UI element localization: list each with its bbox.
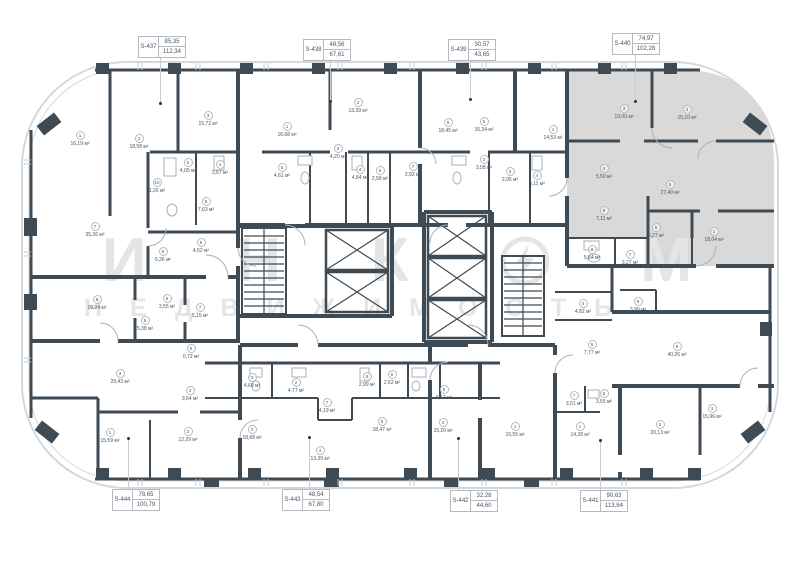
room-number: 2 xyxy=(439,418,448,427)
room-number: 3 xyxy=(248,425,257,434)
room-label: 313,00 м² xyxy=(604,104,644,120)
room-label: 45,11 м² xyxy=(517,171,557,187)
unit-label-S-444[interactable]: S-44478,65100,79 xyxy=(112,489,160,511)
unit-leader-line xyxy=(160,58,161,103)
unit-leader-dot xyxy=(634,100,637,103)
room-label: 14,60 м² xyxy=(232,373,272,389)
room-number: 8 xyxy=(588,245,597,254)
room-number: 1 xyxy=(283,122,292,131)
room-label: 75,15 м² xyxy=(180,303,220,319)
room-label: 65,36 м² xyxy=(143,247,183,263)
room-area: 13,39 м² xyxy=(338,108,378,114)
room-area: 13,39 м² xyxy=(300,456,340,462)
unit-leader-dot xyxy=(159,102,162,105)
room-label: 72,92 м² xyxy=(393,162,433,178)
room-number: 8 xyxy=(444,118,453,127)
room-label: 819,24 м² xyxy=(77,295,117,311)
room-number: 4 xyxy=(316,446,325,455)
room-label: 735,26 м² xyxy=(75,222,115,238)
room-number: 8 xyxy=(93,295,102,304)
room-area: 4,19 м² xyxy=(307,408,347,414)
unit-id: S-437 xyxy=(139,37,159,57)
room-label: 215,20 м² xyxy=(423,418,463,434)
unit-id: S-443 xyxy=(283,490,303,510)
room-number: 6 xyxy=(652,223,661,232)
room-area: 18,04 м² xyxy=(694,237,734,243)
room-number: 4 xyxy=(186,386,195,395)
room-area: 7,11 м² xyxy=(584,216,624,222)
room-label: 65,27 м² xyxy=(636,223,676,239)
room-number: 6 xyxy=(600,389,609,398)
room-label: 34,20 м² xyxy=(318,144,358,160)
unit-area-upper: 30,57 xyxy=(469,40,495,50)
room-number: 4 xyxy=(533,171,542,180)
room-number: 7 xyxy=(570,391,579,400)
room-area: 40,26 м² xyxy=(657,352,697,358)
room-area: 18,58 м² xyxy=(119,144,159,150)
room-label: 101,26 м² xyxy=(137,178,177,194)
unit-areas: 32,2844,60 xyxy=(471,491,497,511)
room-number: 9 xyxy=(600,206,609,215)
room-number: 10 xyxy=(153,178,162,187)
room-number: 1 xyxy=(576,422,585,431)
room-number: 1 xyxy=(710,227,719,236)
room-area: 4,52 м² xyxy=(181,248,221,254)
unit-area-upper: 74,97 xyxy=(633,34,659,44)
room-number: 9 xyxy=(634,297,643,306)
unit-area-lower: 113,84 xyxy=(601,501,627,511)
room-number: 3 xyxy=(620,104,629,113)
room-label: 73,27 м² xyxy=(610,250,650,266)
room-number: 1 xyxy=(549,125,558,134)
room-label: 116,55 м² xyxy=(495,422,535,438)
unit-areas: 30,5743,65 xyxy=(469,40,495,60)
room-number: 6 xyxy=(159,247,168,256)
room-label: 116,68 м² xyxy=(267,122,307,138)
room-area: 18,47 м² xyxy=(362,427,402,433)
room-number: 8 xyxy=(673,342,682,351)
room-label: 516,34 м² xyxy=(464,117,504,133)
unit-label-S-442[interactable]: S-44232,2844,60 xyxy=(450,490,498,512)
unit-leader-dot xyxy=(599,439,602,442)
room-number: 9 xyxy=(187,344,196,353)
room-area: 6,17 м² xyxy=(424,395,464,401)
room-area: 27,40 м² xyxy=(650,190,690,196)
room-area: 12,29 м² xyxy=(168,437,208,443)
room-label: 115,59 м² xyxy=(90,428,130,444)
unit-leader-line xyxy=(128,438,129,489)
room-number: 6 xyxy=(388,370,397,379)
unit-leader-line xyxy=(458,438,459,490)
unit-id: S-439 xyxy=(449,40,469,60)
room-label: 93,99 м² xyxy=(618,297,658,313)
unit-id: S-444 xyxy=(113,490,133,510)
room-area: 3,64 м² xyxy=(170,396,210,402)
room-label: 44,82 м² xyxy=(563,299,603,315)
room-number: 5 xyxy=(588,340,597,349)
floor-plan-page: И Н К М НЕДВИЖИМОСТЬ xyxy=(0,0,800,566)
room-number: 3 xyxy=(506,167,515,176)
room-area: 15,20 м² xyxy=(423,428,463,434)
room-label: 318,68 м² xyxy=(232,425,272,441)
room-label: 213,39 м² xyxy=(338,98,378,114)
room-number: 5 xyxy=(184,158,193,167)
room-number: 2 xyxy=(135,134,144,143)
room-area: 5,38 м² xyxy=(125,326,165,332)
room-number: 5 xyxy=(141,316,150,325)
room-area: 2,62 м² xyxy=(372,380,412,386)
room-number: 8 xyxy=(202,197,211,206)
room-number: 2 xyxy=(656,420,665,429)
unit-label-S-437[interactable]: S-43785,35112,34 xyxy=(138,36,186,58)
room-label: 114,28 м² xyxy=(560,422,600,438)
room-label: 315,72 м² xyxy=(188,111,228,127)
unit-area-lower: 112,34 xyxy=(159,47,185,57)
unit-area-lower: 67,80 xyxy=(303,500,329,510)
room-area: 18,45 м² xyxy=(428,128,468,134)
room-label: 116,19 м² xyxy=(60,131,100,147)
unit-leader-dot xyxy=(469,98,472,101)
room-label: 85,64 м² xyxy=(572,245,612,261)
room-area: 14,28 м² xyxy=(560,432,600,438)
room-number: 6 xyxy=(163,294,172,303)
room-number: 6 xyxy=(376,166,385,175)
room-number: 5 xyxy=(363,372,372,381)
room-area: 19,24 м² xyxy=(77,305,117,311)
room-area: 5,50 м² xyxy=(584,174,624,180)
unit-leader-dot xyxy=(457,437,460,440)
room-area: 2,92 м² xyxy=(393,172,433,178)
room-label: 218,58 м² xyxy=(119,134,159,150)
room-area: 5,64 м² xyxy=(572,255,612,261)
unit-leader-line xyxy=(635,55,636,101)
unit-leader-dot xyxy=(329,100,332,103)
room-label: 329,43 м² xyxy=(100,369,140,385)
room-area: 4,61 м² xyxy=(262,173,302,179)
room-area: 1,26 м² xyxy=(137,188,177,194)
room-label: 114,53 м² xyxy=(533,125,573,141)
room-area: 3,67 м² xyxy=(200,170,240,176)
unit-areas: 48,5467,80 xyxy=(303,490,329,510)
room-label: 45,50 м² xyxy=(584,164,624,180)
room-label: 43,64 м² xyxy=(170,386,210,402)
unit-leader-dot xyxy=(308,436,311,439)
room-number: 3 xyxy=(116,369,125,378)
room-area: 18,68 м² xyxy=(232,435,272,441)
unit-area-lower: 100,79 xyxy=(133,500,159,510)
room-number: 2 xyxy=(480,155,489,164)
room-label: 818,47 м² xyxy=(362,417,402,433)
room-label: 413,39 м² xyxy=(300,446,340,462)
room-number: 5 xyxy=(278,163,287,172)
unit-area-upper: 32,28 xyxy=(471,491,497,501)
room-number: 3 xyxy=(204,111,213,120)
room-area: 16,68 м² xyxy=(267,132,307,138)
room-area: 16,19 м² xyxy=(60,141,100,147)
room-label: 94,52 м² xyxy=(181,238,221,254)
room-area: 35,26 м² xyxy=(75,232,115,238)
room-area: 3,55 м² xyxy=(584,399,624,405)
room-number: 4 xyxy=(600,164,609,173)
room-label: 840,26 м² xyxy=(657,342,697,358)
room-label: 87,63 м² xyxy=(186,197,226,213)
room-label: 43,67 м² xyxy=(200,160,240,176)
unit-area-lower: 44,60 xyxy=(471,501,497,511)
room-area: 3,99 м² xyxy=(618,307,658,313)
unit-label-S-438[interactable]: S-43848,5667,61 xyxy=(303,39,351,61)
unit-area-upper: 48,54 xyxy=(303,490,329,500)
unit-areas: 90,63113,84 xyxy=(601,491,627,511)
room-area: 15,10 м² xyxy=(667,115,707,121)
room-label: 118,04 м² xyxy=(694,227,734,243)
unit-areas: 48,5667,61 xyxy=(324,40,350,60)
room-area: 15,96 м² xyxy=(692,414,732,420)
room-number: 4 xyxy=(216,160,225,169)
room-area: 0,72 м² xyxy=(171,354,211,360)
room-number: 2 xyxy=(354,98,363,107)
unit-leader-dot xyxy=(127,437,130,440)
unit-leader-line xyxy=(470,61,471,99)
room-number: 2 xyxy=(683,105,692,114)
room-label: 62,62 м² xyxy=(372,370,412,386)
room-area: 16,55 м² xyxy=(495,432,535,438)
room-label: 24,77 м² xyxy=(276,378,316,394)
room-area: 5,15 м² xyxy=(180,313,220,319)
room-number: 3 xyxy=(334,144,343,153)
unit-area-upper: 48,56 xyxy=(324,40,350,50)
room-number: 2 xyxy=(184,427,193,436)
room-area: 16,34 м² xyxy=(464,127,504,133)
unit-label-S-441[interactable]: S-44190,63113,84 xyxy=(580,490,628,512)
unit-areas: 78,65100,79 xyxy=(133,490,159,510)
room-label: 63,55 м² xyxy=(584,389,624,405)
room-label: 527,40 м² xyxy=(650,180,690,196)
room-label: 97,11 м² xyxy=(584,206,624,222)
room-area: 13,00 м² xyxy=(604,114,644,120)
labels-layer: 116,19 м²218,58 м²315,72 м²54,05 м²43,67… xyxy=(0,0,800,566)
unit-label-S-443[interactable]: S-44348,5467,80 xyxy=(282,489,330,511)
room-label: 56,17 м² xyxy=(424,385,464,401)
unit-area-lower: 102,28 xyxy=(633,44,659,54)
room-area: 7,77 м² xyxy=(572,350,612,356)
room-label: 90,72 м² xyxy=(171,344,211,360)
room-area: 4,82 м² xyxy=(563,309,603,315)
room-number: 7 xyxy=(91,222,100,231)
room-area: 4,77 м² xyxy=(276,388,316,394)
room-area: 5,27 м² xyxy=(636,233,676,239)
room-area: 29,43 м² xyxy=(100,379,140,385)
unit-area-upper: 78,65 xyxy=(133,490,159,500)
room-label: 220,13 м² xyxy=(640,420,680,436)
unit-area-lower: 43,65 xyxy=(469,50,495,60)
room-number: 7 xyxy=(409,162,418,171)
room-label: 54,61 м² xyxy=(262,163,302,179)
room-area: 15,59 м² xyxy=(90,438,130,444)
room-area: 14,53 м² xyxy=(533,135,573,141)
unit-area-upper: 85,35 xyxy=(159,37,185,47)
unit-leader-line xyxy=(330,61,331,101)
room-area: 15,72 м² xyxy=(188,121,228,127)
room-number: 5 xyxy=(480,117,489,126)
room-label: 818,45 м² xyxy=(428,118,468,134)
unit-leader-line xyxy=(600,440,601,490)
room-number: 1 xyxy=(511,422,520,431)
room-area: 7,63 м² xyxy=(186,207,226,213)
unit-leader-line xyxy=(309,437,310,489)
room-area: 5,36 м² xyxy=(143,257,183,263)
room-label: 215,10 м² xyxy=(667,105,707,121)
room-label: 74,19 м² xyxy=(307,398,347,414)
room-number: 2 xyxy=(292,378,301,387)
room-number: 3 xyxy=(708,404,717,413)
room-number: 1 xyxy=(106,428,115,437)
room-label: 315,96 м² xyxy=(692,404,732,420)
room-number: 1 xyxy=(76,131,85,140)
unit-id: S-438 xyxy=(304,40,324,60)
room-number: 7 xyxy=(323,398,332,407)
room-number: 5 xyxy=(440,385,449,394)
room-number: 4 xyxy=(579,299,588,308)
room-number: 7 xyxy=(196,303,205,312)
unit-area-lower: 67,61 xyxy=(324,50,350,60)
room-number: 1 xyxy=(248,373,257,382)
unit-areas: 85,35112,34 xyxy=(159,37,185,57)
unit-id: S-440 xyxy=(613,34,633,54)
room-label: 212,29 м² xyxy=(168,427,208,443)
unit-areas: 74,97102,28 xyxy=(633,34,659,54)
room-number: 9 xyxy=(197,238,206,247)
room-area: 4,20 м² xyxy=(318,154,358,160)
room-label: 57,77 м² xyxy=(572,340,612,356)
unit-id: S-442 xyxy=(451,491,471,511)
room-area: 3,27 м² xyxy=(610,260,650,266)
room-area: 4,60 м² xyxy=(232,383,272,389)
room-area: 20,13 м² xyxy=(640,430,680,436)
unit-area-upper: 90,63 xyxy=(601,491,627,501)
unit-label-S-440[interactable]: S-44074,97102,28 xyxy=(612,33,660,55)
room-area: 5,11 м² xyxy=(517,181,557,187)
unit-label-S-439[interactable]: S-43930,5743,65 xyxy=(448,39,496,61)
room-number: 8 xyxy=(378,417,387,426)
unit-id: S-441 xyxy=(581,491,601,511)
room-number: 5 xyxy=(666,180,675,189)
room-label: 55,38 м² xyxy=(125,316,165,332)
room-number: 7 xyxy=(626,250,635,259)
